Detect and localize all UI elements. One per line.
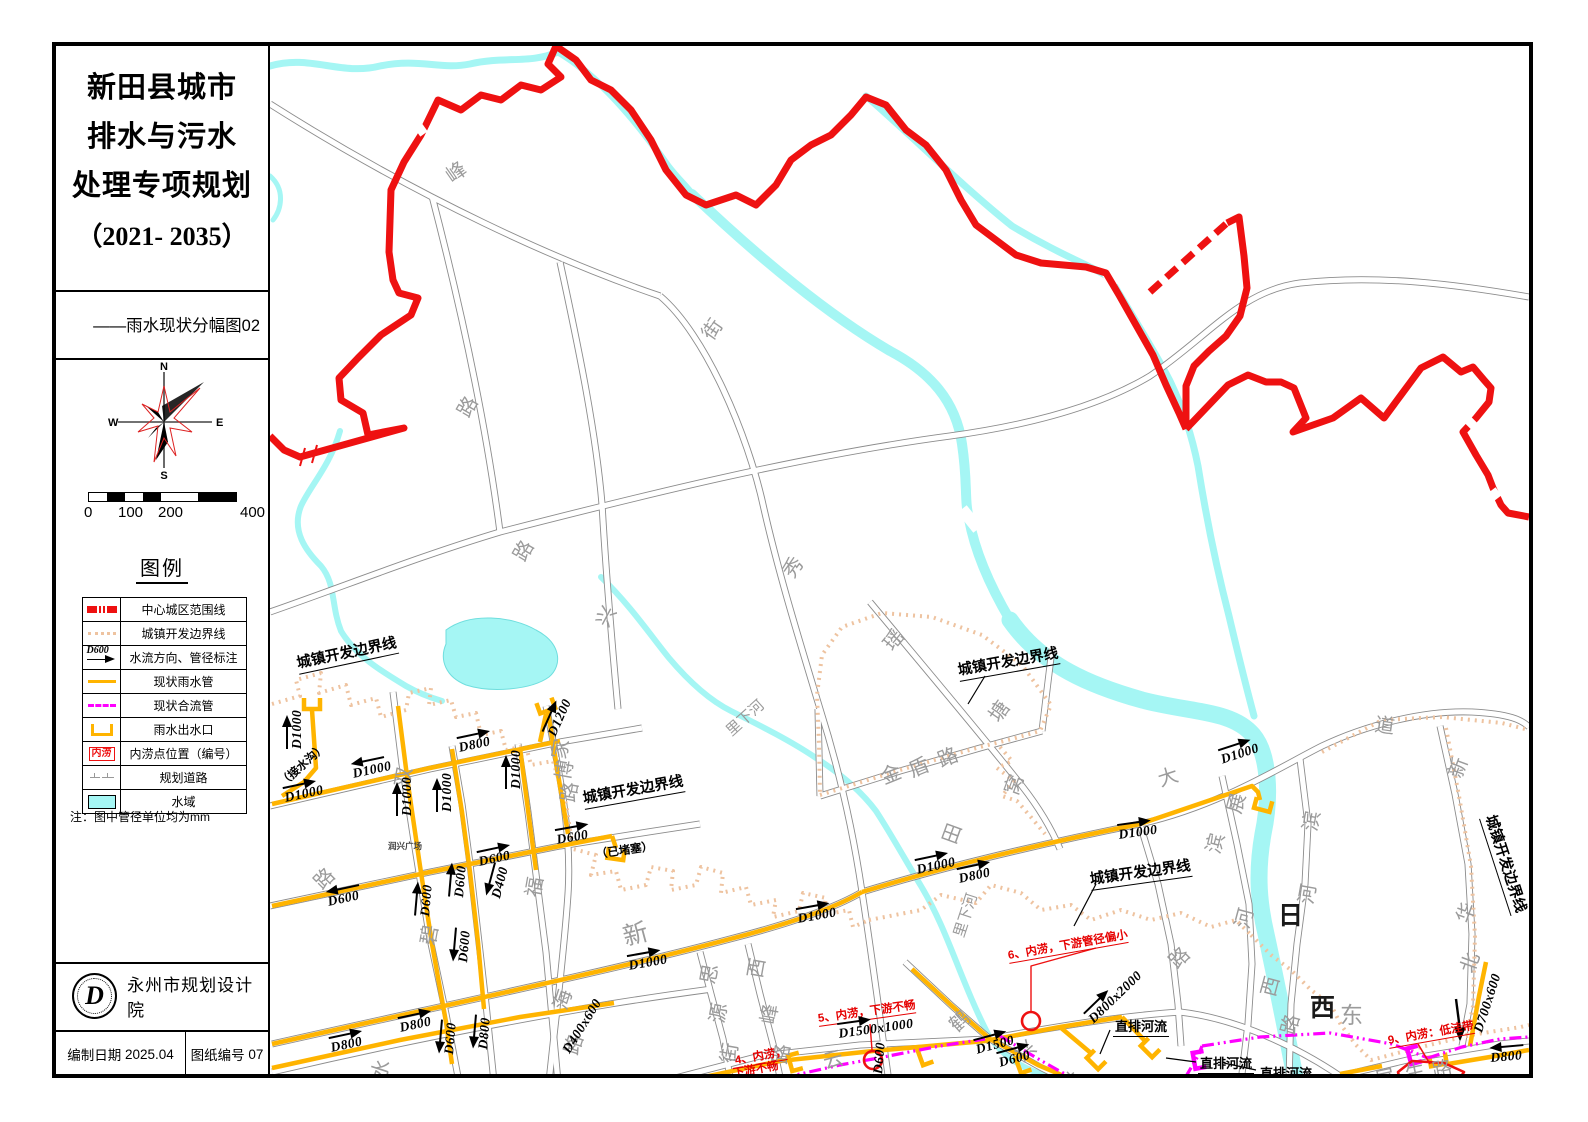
- road-name-label: 林: [1052, 1063, 1086, 1074]
- pipe-size-label: D800: [328, 1027, 365, 1054]
- planned-road-icon: [83, 766, 121, 789]
- boundary-label: 城镇开发边界线: [1479, 812, 1529, 916]
- river-discharge-label: 直排河流: [1198, 1053, 1254, 1074]
- road-name-label: 福: [517, 874, 549, 899]
- combined-pipe-icon: [83, 694, 121, 717]
- pipe-note-label: （接水沟）: [276, 740, 329, 790]
- legend-label: 现状合流管: [121, 697, 246, 714]
- pipe-size-label: D1000: [282, 776, 325, 804]
- svg-text:E: E: [216, 417, 223, 429]
- flow-direction-arrow: [350, 753, 385, 768]
- pipe-size-label: D600: [449, 927, 472, 963]
- divider: [56, 290, 268, 292]
- flow-direction-arrow: [393, 782, 401, 816]
- road-name-label: 云: [819, 1041, 846, 1074]
- pipe-size-label: D1000: [914, 848, 957, 876]
- flow-direction-arrow: [626, 946, 661, 960]
- pipe-size-label: D1500x1000: [837, 1010, 915, 1040]
- road-name-label: 北: [1451, 948, 1485, 977]
- pipe-size-label: D1000: [626, 945, 668, 972]
- flow-direction-arrow: [283, 715, 291, 749]
- scale-bar: [88, 492, 237, 502]
- legend-row: D600水流方向、管径标注: [83, 646, 246, 670]
- road-name-label: 秀: [774, 550, 809, 583]
- flow-direction-arrow: [328, 1027, 363, 1042]
- title-line-1: 新田县城市: [56, 64, 268, 113]
- flow-direction-arrow: [795, 899, 830, 913]
- flow-direction-arrow: [539, 699, 560, 733]
- road-name-label: 峰: [752, 1001, 784, 1026]
- scale-tick: 100: [118, 504, 143, 521]
- svg-text:S: S: [160, 470, 167, 480]
- road-name-label: 路: [504, 534, 539, 566]
- flow-direction-arrow: [469, 1014, 480, 1049]
- legend-label: 规划道路: [121, 769, 246, 786]
- pipe-size-label: D1000: [1117, 816, 1159, 841]
- road-name-label: 路: [933, 739, 962, 773]
- svg-text:N: N: [160, 361, 168, 373]
- flow-direction-arrow: [1081, 987, 1111, 1016]
- map-canvas: 峰街路路兴秀瑶塘窝田金盾路双碧路水家博路福新海路思源街西峰路云鹤兴林大道展滨河西…: [270, 46, 1529, 1074]
- road-name-label: 里下河: [721, 695, 769, 741]
- scale-tick: 200: [158, 504, 183, 521]
- flood-annotation: 4、内涝，: [734, 1043, 789, 1069]
- flow-direction-arrow: [476, 841, 511, 856]
- legend-row: 城镇开发边界线: [83, 622, 246, 646]
- flow-direction-arrow: [837, 1015, 872, 1028]
- pipe-size-label: D1500: [972, 1026, 1015, 1055]
- flood-annotation: 5、内涝，下游不畅: [817, 996, 917, 1027]
- flow-direction-arrow: [482, 862, 499, 897]
- river-discharge-label: 直排河流: [1258, 1063, 1314, 1074]
- flow-direction-arrow: [502, 755, 510, 789]
- map-labels-layer: 峰街路路兴秀瑶塘窝田金盾路双碧路水家博路福新海路思源街西峰路云鹤兴林大道展滨河西…: [270, 46, 1529, 1074]
- red-dash-icon: [83, 598, 121, 621]
- road-name-label: 水: [362, 1055, 396, 1074]
- date-value: 2025.04: [125, 1047, 174, 1062]
- legend-row: 现状合流管: [83, 694, 246, 718]
- pipe-size-label: D600: [872, 1042, 887, 1074]
- pipe-size-label: D400x600: [561, 997, 604, 1055]
- pipe-size-label: D1000: [393, 777, 413, 816]
- road-name-label: 华: [1447, 898, 1481, 927]
- flow-direction-arrow: [411, 881, 422, 916]
- road-name-label: 河: [1226, 904, 1259, 931]
- road-name-label: 窝: [995, 770, 1029, 799]
- road-name-label: 峰: [439, 153, 472, 188]
- road-name-label: 塘: [980, 694, 1015, 727]
- flow-direction-arrow: [449, 927, 460, 962]
- svg-text:W: W: [108, 417, 119, 429]
- pipe-size-label: D700x600: [1472, 972, 1502, 1034]
- road-name-label: 路: [1161, 939, 1196, 974]
- pipe-size-label: D600: [435, 1019, 458, 1055]
- flow-direction-arrow: [445, 862, 456, 897]
- flow-direction-arrow: [1117, 816, 1152, 829]
- road-name-label: 滨: [1197, 829, 1230, 856]
- legend-row: 规划道路: [83, 766, 246, 790]
- pipe-note-label: （已堵塞）: [595, 838, 654, 862]
- legend-row: 雨水出水口: [83, 718, 246, 742]
- legend-label: 城镇开发边界线: [121, 625, 246, 642]
- boundary-label: 城镇开发边界线: [295, 631, 399, 675]
- flow-direction-arrow: [435, 1019, 446, 1054]
- road-name-label: 屏: [1372, 1060, 1398, 1074]
- road-name-label: 河: [1290, 881, 1322, 906]
- pipe-size-label: D1000: [433, 773, 453, 812]
- flow-direction-arrow: [1489, 1041, 1524, 1052]
- pipe-size-label: D1000: [502, 750, 522, 789]
- road-name-label: 海: [544, 985, 578, 1013]
- sheet-subtitle: ——雨水现状分幅图02: [56, 312, 260, 336]
- road-name-label: 兴: [587, 600, 622, 631]
- pipe-size-label: D600: [411, 881, 434, 917]
- sheet-no-cell: 图纸编号 07: [186, 1030, 268, 1078]
- flow-direction-arrow: [433, 778, 441, 812]
- flow-dir-icon: D600: [83, 646, 121, 669]
- road-name-label: 街: [693, 312, 728, 345]
- title-panel: 新田县城市 排水与污水 处理专项规划 （2021- 2035） ——雨水现状分幅…: [56, 46, 268, 1074]
- road-name-label: 新: [618, 912, 651, 953]
- pipe-size-label: D1000: [1217, 734, 1261, 765]
- institute-logo: D: [72, 973, 117, 1019]
- flow-direction-arrow: [325, 881, 360, 896]
- tan-dot-icon: [83, 622, 121, 645]
- road-name-label: 新: [1439, 753, 1473, 782]
- place-name-label: 日: [1278, 896, 1303, 932]
- pipe-size-label: D600: [445, 862, 468, 898]
- pipe-size-label: D800: [456, 727, 493, 754]
- date-cell: 编制日期 2025.04: [56, 1030, 186, 1078]
- place-name-label: 西: [1310, 988, 1335, 1024]
- pipe-size-label: D800x2000: [1081, 963, 1144, 1025]
- road-name-label: 源: [701, 1000, 733, 1025]
- boundary-label: 城镇开发边界线: [956, 642, 1060, 682]
- flood-annotation: 9、内涝：低洼带: [1387, 1017, 1476, 1049]
- pipe-size-label: D600: [476, 841, 513, 868]
- sheet-no-value: 07: [248, 1047, 263, 1062]
- road-name-label: 街: [712, 1040, 744, 1065]
- legend-label: 水流方向、管径标注: [121, 649, 246, 666]
- pipe-size-label: D800: [1489, 1041, 1525, 1064]
- road-name-label: 路: [764, 1041, 796, 1066]
- pipe-size-label: D800: [397, 1007, 434, 1034]
- road-name-label: 里下河: [948, 890, 982, 939]
- flow-direction-arrow: [1217, 736, 1252, 754]
- road-name-label: 路: [1272, 1010, 1305, 1037]
- road-name-label: 东: [1340, 996, 1363, 1030]
- legend-label: 内涝点位置（编号）: [121, 745, 246, 762]
- boundary-label: 城镇开发边界线: [1088, 854, 1192, 891]
- title-line-2: 排水与污水: [56, 113, 268, 162]
- pipe-size-label: D1000: [350, 752, 393, 780]
- pipe-size-label: D800: [469, 1014, 492, 1050]
- road-name-label: 金: [876, 756, 905, 790]
- pipe-size-label: D400: [482, 862, 510, 900]
- legend-title: 图例: [56, 552, 268, 581]
- legend-row: 中心城区范围线: [83, 598, 246, 622]
- rain-pipe-icon: [83, 670, 121, 693]
- road-name-label: 盾: [904, 749, 933, 783]
- road-name-label: 道: [1373, 708, 1397, 740]
- road-name-label: 路: [552, 779, 584, 804]
- flow-direction-arrow: [282, 777, 317, 792]
- place-label: 润兴广场: [388, 840, 422, 852]
- sheet-no-label: 图纸编号: [191, 1044, 245, 1064]
- flood-point-icon: 内涝: [83, 742, 121, 765]
- road-name-label: 路: [1429, 1051, 1455, 1074]
- title-years: （2021- 2035）: [56, 211, 268, 263]
- road-name-label: 博: [547, 757, 579, 782]
- flood-annotation: 下游不畅: [732, 1057, 780, 1074]
- legend-row: 内涝内涝点位置（编号）: [83, 742, 246, 766]
- road-name-label: 双: [386, 764, 418, 789]
- legend: 中心城区范围线城镇开发边界线D600水流方向、管径标注现状雨水管现状合流管雨水出…: [82, 597, 247, 814]
- road-name-label: 西: [739, 955, 771, 980]
- pipe-size-label: D1000: [283, 710, 303, 749]
- flow-direction-arrow: [397, 1007, 432, 1022]
- flow-direction-arrow: [995, 1041, 1030, 1058]
- institute-name: 永州市规划设计院: [127, 971, 268, 1021]
- road-name-label: 瑶: [875, 622, 910, 656]
- flow-direction-arrow: [456, 727, 491, 742]
- flow-direction-arrow: [956, 858, 991, 873]
- road-name-label: 路: [306, 860, 341, 895]
- pipe-size-label: D600: [995, 1041, 1033, 1069]
- road-name-label: 碧: [412, 922, 444, 947]
- road-name-label: 鹤: [941, 1002, 975, 1037]
- road-name-label: 大: [1154, 759, 1182, 793]
- road-name-label: 田: [933, 819, 967, 848]
- pipe-size-label: D1200: [539, 694, 573, 738]
- plan-sheet: 新田县城市 排水与污水 处理专项规划 （2021- 2035） ——雨水现状分幅…: [52, 42, 1533, 1078]
- road-name-label: 思: [692, 961, 724, 986]
- legend-label: 雨水出水口: [121, 721, 246, 738]
- legend-note: 注：图中管径单位均为mm: [70, 808, 210, 825]
- road-name-label: 家: [543, 736, 575, 761]
- road-name-label: 路: [448, 390, 483, 422]
- legend-label: 中心城区范围线: [121, 601, 246, 618]
- title-line-3: 处理专项规划: [56, 162, 268, 211]
- sheet-title: 新田县城市 排水与污水 处理专项规划 （2021- 2035）: [56, 64, 268, 263]
- pipe-size-label: D1000: [795, 898, 837, 925]
- flow-direction-arrow: [554, 820, 589, 834]
- pipe-size-label: D600: [325, 881, 362, 908]
- boundary-label: 城镇开发边界线: [581, 770, 685, 810]
- flow-direction-arrow: [914, 849, 949, 864]
- road-name-label: 滨: [1294, 808, 1326, 833]
- legend-row: 现状雨水管: [83, 670, 246, 694]
- outfall-icon: [83, 718, 121, 741]
- river-discharge-label: 直排河流: [1113, 1016, 1169, 1037]
- road-name-label: 生: [1402, 1054, 1428, 1074]
- date-label: 编制日期: [67, 1044, 121, 1064]
- road-name-label: 展: [1218, 789, 1251, 816]
- pipe-size-label: D600: [554, 820, 591, 846]
- pipe-size-label: D800: [956, 858, 993, 885]
- scale-tick: 0: [84, 504, 92, 521]
- scale-tick: 400: [240, 504, 265, 521]
- road-name-label: 西: [1252, 972, 1285, 999]
- road-name-label: 路: [555, 1030, 589, 1058]
- road-name-label: 兴: [1007, 1032, 1041, 1067]
- legend-label: 现状雨水管: [121, 673, 246, 690]
- flood-annotation: 6、内涝，下游管径偏小: [1007, 926, 1130, 964]
- flow-direction-arrow: [972, 1028, 1007, 1045]
- compass-rose-icon: N S E W: [104, 360, 224, 480]
